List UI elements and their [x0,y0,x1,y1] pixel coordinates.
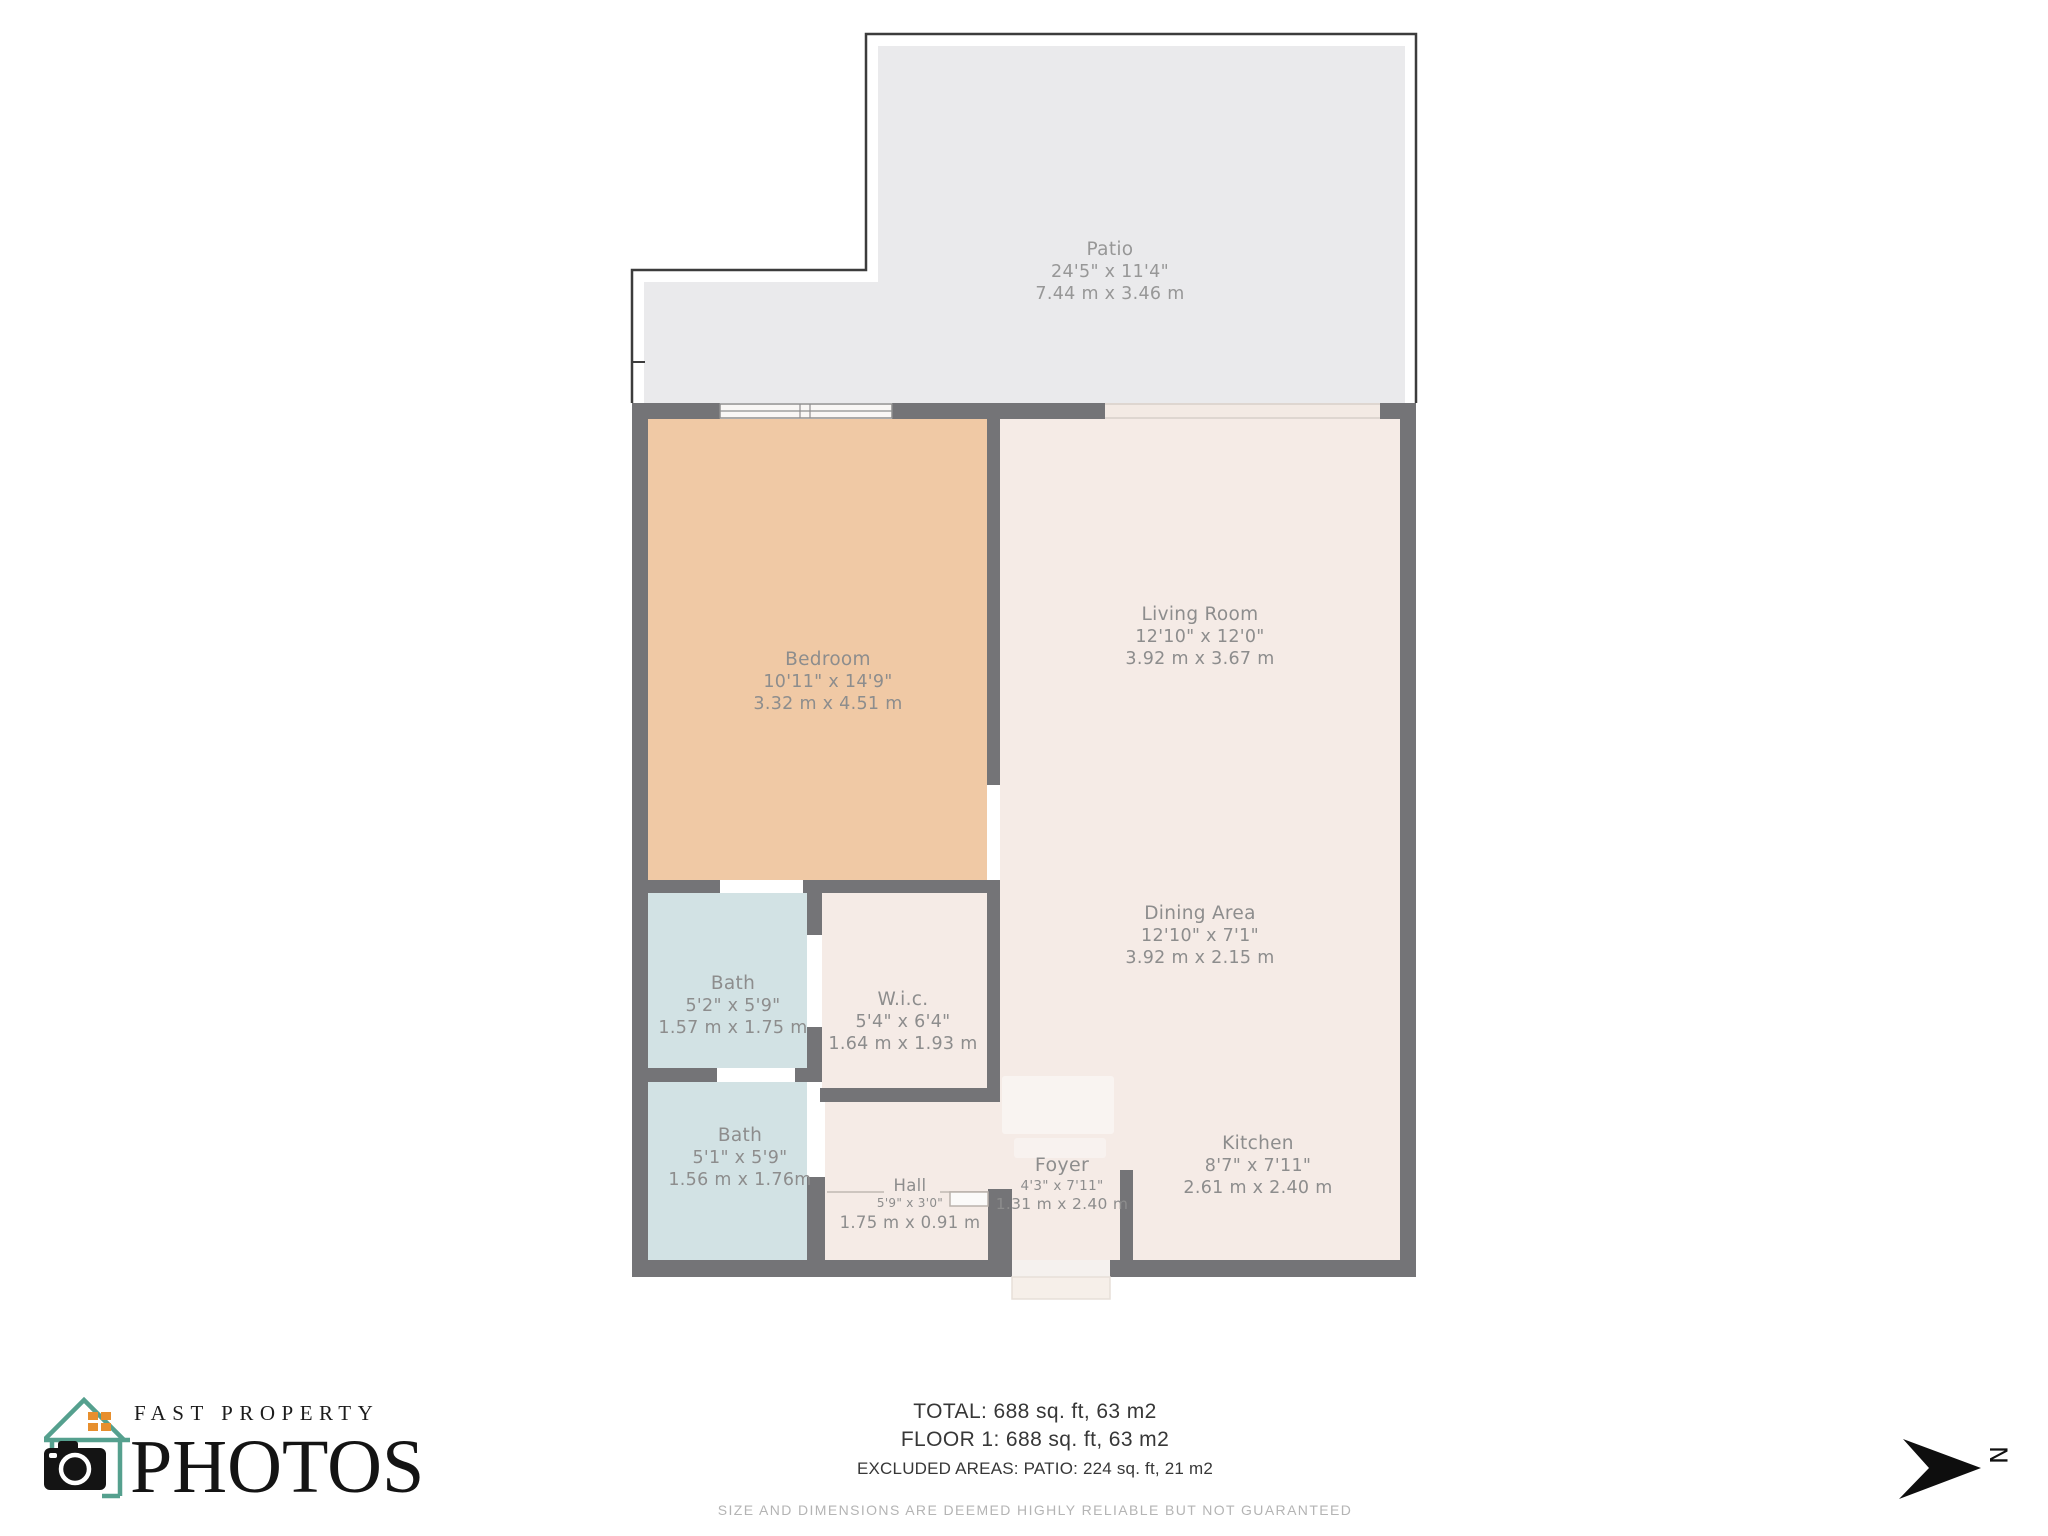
logo-line1: FAST PROPERTY [134,1401,379,1425]
patio-door-opening [1105,403,1380,419]
room-label-bedroom: Bedroom 10'11" x 14'9" 3.32 m x 4.51 m [753,649,902,715]
excluded-area-text: EXCLUDED AREAS: PATIO: 224 sq. ft, 21 m2 [535,1454,1535,1483]
floor1-area-text: FLOOR 1: 688 sq. ft, 63 m2 [535,1426,1535,1454]
compass-north-arrow: N [1893,1432,2043,1512]
north-label: N [1984,1446,2012,1464]
room-label-hall: Hall 5'9" x 3'0" 1.75 m x 0.91 m [840,1176,981,1233]
room-label-bath-lower: Bath 5'1" x 5'9" 1.56 m x 1.76m [668,1125,811,1191]
area-summary: TOTAL: 688 sq. ft, 63 m2 FLOOR 1: 688 sq… [535,1398,1535,1483]
total-area-text: TOTAL: 688 sq. ft, 63 m2 [535,1398,1535,1426]
room-label-foyer: Foyer 4'3" x 7'11" 1.31 m x 2.40 m [996,1153,1129,1214]
disclaimer-text: SIZE AND DIMENSIONS ARE DEEMED HIGHLY RE… [535,1502,1535,1518]
floor-plan-drawing [0,0,2048,1536]
room-label-dining-area: Dining Area 12'10" x 7'1" 3.92 m x 2.15 … [1125,903,1274,969]
entrance-step [1012,1277,1110,1299]
room-label-wic: W.i.c. 5'4" x 6'4" 1.64 m x 1.93 m [828,989,977,1055]
logo-line2: PHOTOS [130,1425,424,1508]
bedroom-window-icon [720,404,892,418]
room-label-living-room: Living Room 12'10" x 12'0" 3.92 m x 3.67… [1125,604,1274,670]
ghost-closet-outline [1002,1076,1114,1134]
north-arrow-icon [1899,1439,1981,1499]
entrance-opening [1012,1260,1110,1277]
patio-area [644,46,1405,403]
logo-camera-icon [44,1441,106,1490]
room-label-patio: Patio 24'5" x 11'4" 7.44 m x 3.46 m [1035,239,1184,305]
room-label-bath-upper: Bath 5'2" x 5'9" 1.57 m x 1.75 m [658,973,807,1039]
room-label-kitchen: Kitchen 8'7" x 7'11" 2.61 m x 2.40 m [1183,1133,1332,1199]
floor-plan-page: Patio 24'5" x 11'4" 7.44 m x 3.46 m Bedr… [0,0,2048,1536]
fast-property-photos-logo: FAST PROPERTY PHOTOS [44,1396,484,1508]
